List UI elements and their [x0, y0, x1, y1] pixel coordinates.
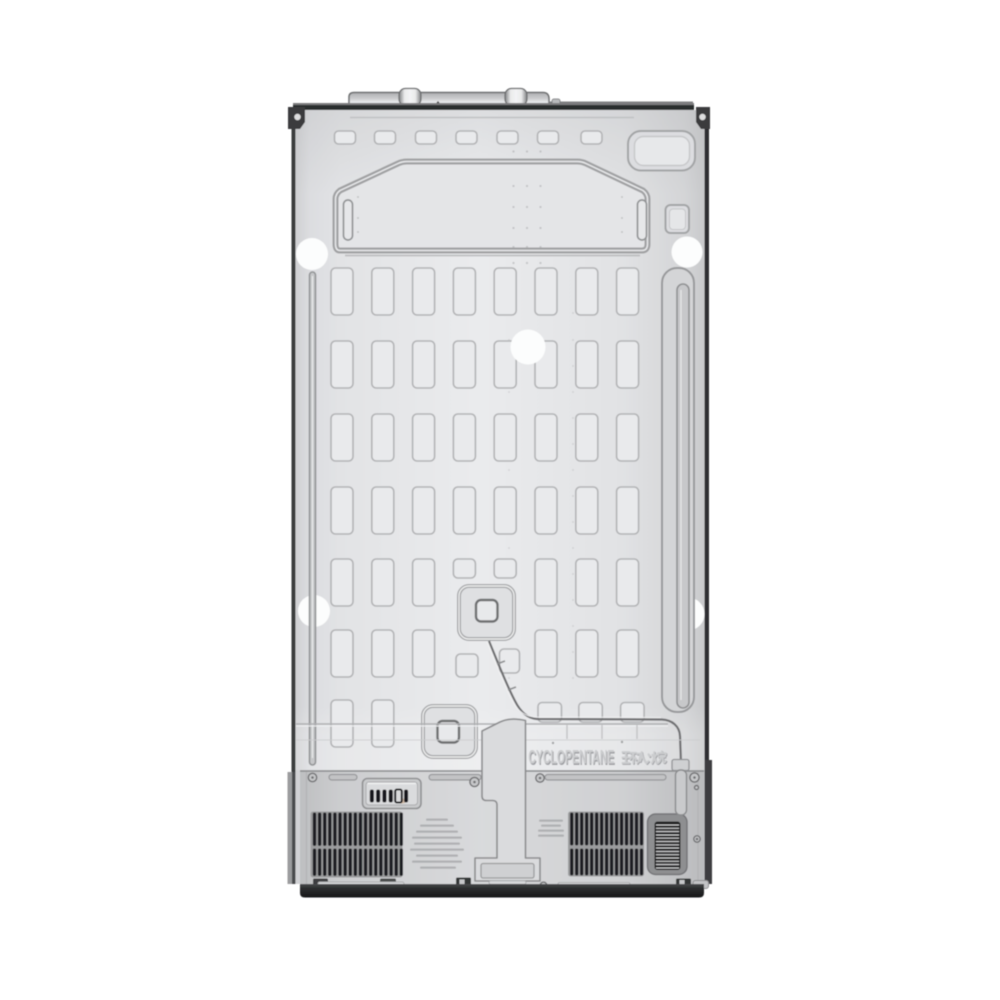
svg-text:CYCLOPENTANE: CYCLOPENTANE [528, 747, 614, 768]
